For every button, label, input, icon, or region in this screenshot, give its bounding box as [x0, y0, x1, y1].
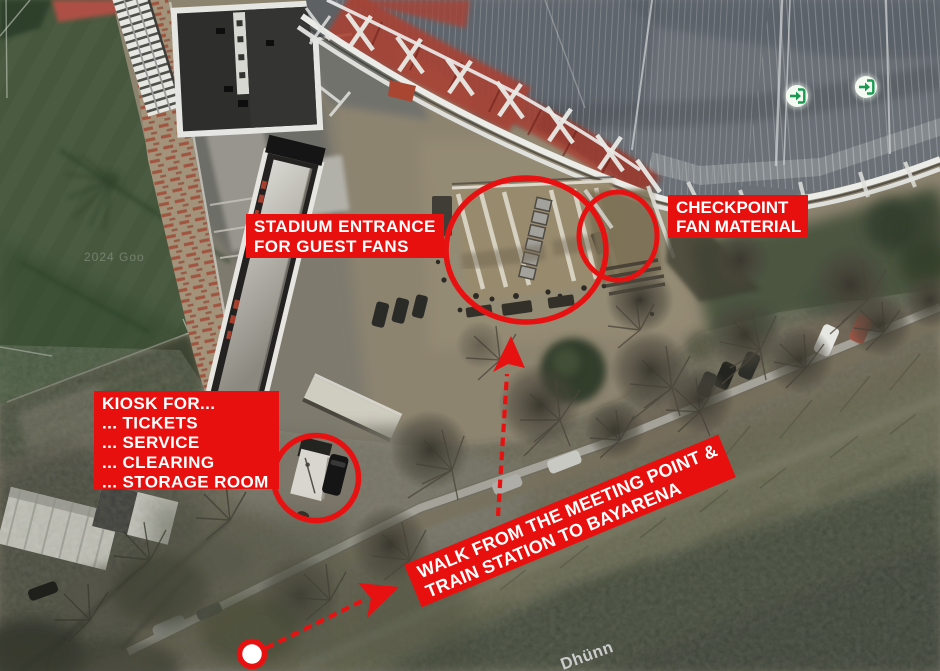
svg-text:2024 Goo: 2024 Goo	[84, 250, 145, 264]
svg-text:... TICKETS: ... TICKETS	[102, 414, 198, 433]
svg-text:... SERVICE: ... SERVICE	[102, 433, 200, 452]
svg-text:... CLEARING: ... CLEARING	[102, 453, 214, 472]
svg-text:STADIUM ENTRANCE: STADIUM ENTRANCE	[254, 217, 436, 236]
svg-text:... STORAGE ROOM: ... STORAGE ROOM	[102, 472, 269, 491]
svg-text:KIOSK FOR...: KIOSK FOR...	[102, 394, 215, 413]
svg-text:CHECKPOINT: CHECKPOINT	[676, 198, 789, 217]
svg-text:FOR GUEST FANS: FOR GUEST FANS	[254, 237, 409, 256]
svg-text:FAN MATERIAL: FAN MATERIAL	[676, 217, 801, 236]
